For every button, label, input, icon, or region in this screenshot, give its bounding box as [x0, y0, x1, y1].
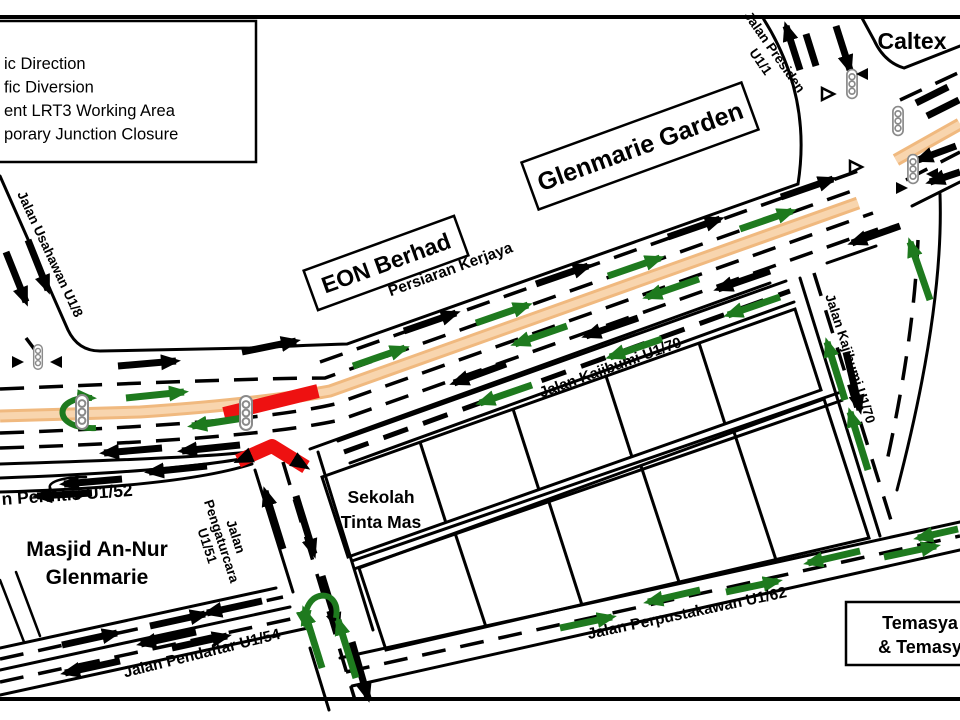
legend-item-traffic-direction: ic Direction [4, 55, 86, 73]
legend-item-junction-closure: porary Junction Closure [4, 126, 178, 144]
svg-text:Masjid An-Nur: Masjid An-Nur [26, 538, 168, 561]
label-masjid-an-nur: Masjid An-Nur Glenmarie [26, 538, 168, 589]
traffic-diversion-arrows [62, 211, 958, 678]
svg-text:Glenmarie: Glenmarie [46, 566, 149, 589]
legend-item-lrt3-working-area: ent LRT3 Working Area [4, 102, 176, 120]
svg-text:Tinta Mas: Tinta Mas [341, 512, 422, 532]
label-glenmarie-garden: Glenmarie Garden [522, 82, 759, 209]
traffic-light-icon [893, 107, 903, 136]
svg-text:& Temasy: & Temasy [878, 637, 960, 657]
label-jalan-pengaturcara: Jalan Pengaturcara U1/51 [187, 493, 257, 589]
legend-item-traffic-diversion: fic Diversion [4, 79, 94, 97]
map-canvas: ic Direction fic Diversion ent LRT3 Work… [0, 0, 960, 720]
label-jalan-perintis: n Perintis U1/52 [1, 480, 134, 509]
traffic-diversion-map: ic Direction fic Diversion ent LRT3 Work… [0, 0, 960, 720]
traffic-light-icon [76, 395, 88, 429]
label-temasya: Temasya & Temasy [846, 602, 960, 665]
legend: ic Direction fic Diversion ent LRT3 Work… [0, 21, 256, 162]
labels: ic Direction fic Diversion ent LRT3 Work… [0, 9, 960, 682]
label-sekolah-tinta-mas: Sekolah Tinta Mas [341, 487, 422, 532]
svg-text:Temasya: Temasya [882, 613, 959, 633]
traffic-light-icon [34, 345, 43, 369]
label-caltex: Caltex [877, 28, 946, 54]
traffic-light-icon [847, 70, 857, 99]
svg-text:Sekolah: Sekolah [347, 487, 414, 507]
traffic-light-icon [908, 155, 918, 184]
road-jalan-kajibumi-steep [800, 194, 940, 536]
traffic-light-icon [240, 396, 252, 430]
label-jalan-pendaftar: Jalan Pendaftar U1/54 [122, 626, 283, 682]
